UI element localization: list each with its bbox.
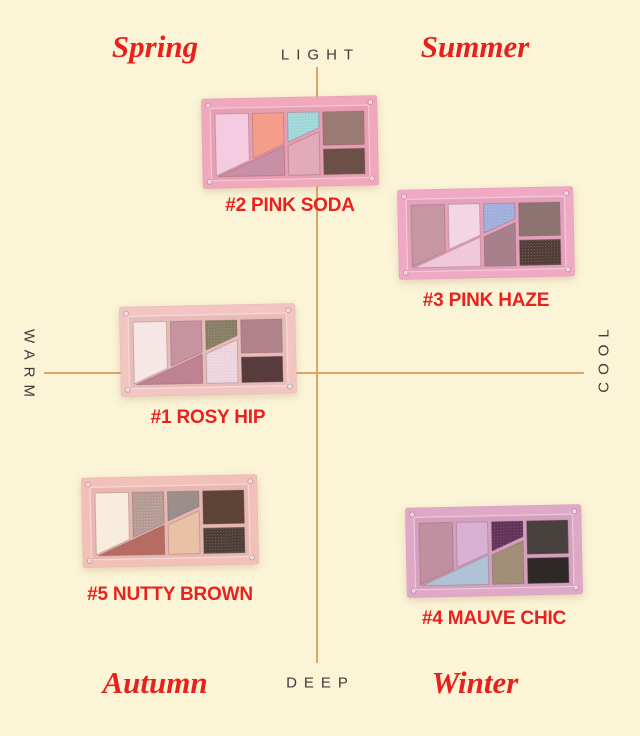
axis-label-deep: DEEP [279, 675, 355, 692]
swatch-4 [323, 111, 365, 145]
swatch-4 [203, 490, 245, 524]
palette-nutty-brown: #5 NUTTY BROWN [82, 476, 258, 606]
palette-label: #4 MAUVE CHIC [406, 608, 582, 630]
season-label-autumn: Autumn [102, 665, 207, 701]
palette-graphic [201, 95, 379, 189]
swatch-4 [519, 202, 561, 236]
swatch-7-sparkle [203, 527, 245, 553]
palette-graphic [81, 474, 259, 568]
palette-label: #2 PINK SODA [202, 195, 378, 217]
swatch-7 [323, 148, 365, 174]
palette-label: #3 PINK HAZE [398, 290, 574, 312]
axis-label-cool: COOL [596, 322, 613, 400]
season-label-winter: Winter [432, 665, 519, 701]
swatch-4 [527, 520, 569, 554]
swatch-7 [527, 557, 569, 583]
season-label-summer: Summer [421, 29, 530, 65]
season-label-spring: Spring [112, 29, 198, 65]
swatch-4 [241, 319, 283, 353]
palette-graphic [397, 186, 575, 280]
palette-rosy-hip: #1 ROSY HIP [120, 305, 296, 429]
palette-graphic [405, 504, 583, 598]
axis-label-light: LIGHT [274, 47, 360, 64]
palette-label: #5 NUTTY BROWN [82, 584, 258, 606]
palette-pink-soda: #2 PINK SODA [202, 97, 378, 217]
palette-pink-haze: #3 PINK HAZE [398, 188, 574, 312]
palette-graphic [119, 303, 297, 397]
palette-mauve-chic: #4 MAUVE CHIC [406, 506, 582, 630]
palette-label: #1 ROSY HIP [120, 407, 296, 429]
swatch-7 [241, 356, 283, 382]
axis-label-warm: WARM [21, 322, 38, 404]
seasonal-palette-map: Spring Summer Autumn Winter LIGHT DEEP W… [0, 0, 640, 736]
swatch-7-sparkle [519, 239, 561, 265]
